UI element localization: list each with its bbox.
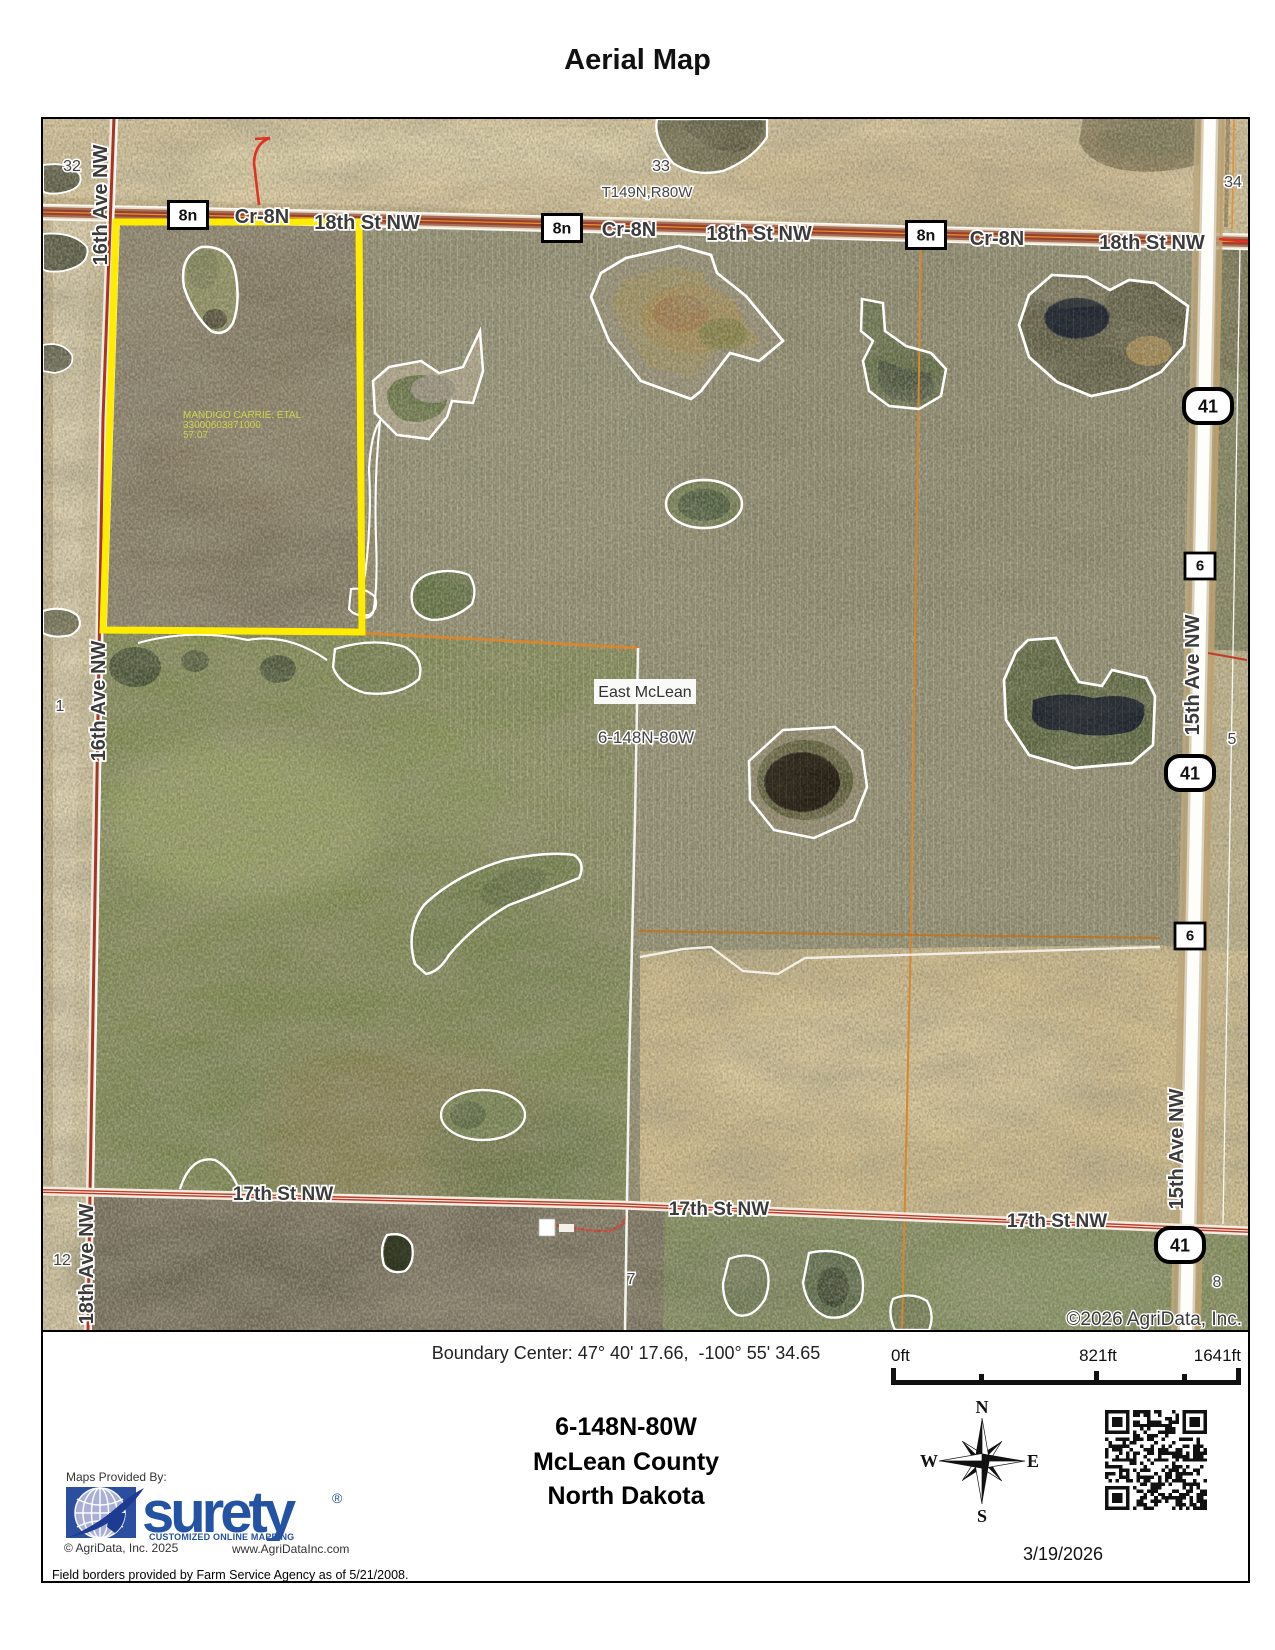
svg-text:N: N xyxy=(976,1397,989,1417)
svg-text:18th St NW: 18th St NW xyxy=(314,212,420,234)
svg-text:Cr-8N: Cr-8N xyxy=(602,219,656,241)
svg-text:CUSTOMIZED ONLINE MAPPING: CUSTOMIZED ONLINE MAPPING xyxy=(149,1532,294,1541)
svg-text:8n: 8n xyxy=(179,208,198,225)
svg-text:17th St NW: 17th St NW xyxy=(233,1184,333,1205)
svg-text:1: 1 xyxy=(56,698,65,715)
svg-text:16th Ave NW: 16th Ave NW xyxy=(88,640,110,761)
svg-text:5: 5 xyxy=(1228,731,1237,748)
svg-text:33: 33 xyxy=(652,158,670,175)
svg-text:18th Ave NW: 18th Ave NW xyxy=(76,1203,98,1324)
svg-text:17th St NW: 17th St NW xyxy=(669,1199,769,1220)
svg-text:7: 7 xyxy=(627,1271,636,1288)
svg-text:34: 34 xyxy=(1224,174,1242,191)
svg-text:6: 6 xyxy=(1196,558,1204,575)
svg-text:15th Ave NW: 15th Ave NW xyxy=(1182,614,1204,735)
svg-text:T149N,R80W: T149N,R80W xyxy=(602,184,694,201)
svg-text:18th St NW: 18th St NW xyxy=(1099,232,1205,254)
svg-text:17th St NW: 17th St NW xyxy=(1007,1211,1107,1232)
svg-text:6-148N-80W: 6-148N-80W xyxy=(598,728,694,747)
svg-text:15th Ave NW: 15th Ave NW xyxy=(1166,1088,1188,1209)
svg-text:1641ft: 1641ft xyxy=(1194,1346,1242,1365)
svg-text:©2026 AgriData, Inc.: ©2026 AgriData, Inc. xyxy=(1066,1309,1242,1330)
svg-text:41: 41 xyxy=(1170,1236,1190,1256)
svg-text:16th Ave NW: 16th Ave NW xyxy=(90,144,112,265)
svg-text:8n: 8n xyxy=(917,228,936,245)
svg-text:0ft: 0ft xyxy=(891,1346,910,1365)
svg-text:®: ® xyxy=(332,1490,343,1506)
svg-text:6: 6 xyxy=(1186,928,1194,945)
svg-text:E: E xyxy=(1027,1451,1039,1471)
svg-text:821ft: 821ft xyxy=(1079,1346,1117,1365)
svg-text:8n: 8n xyxy=(553,221,572,238)
svg-text:W: W xyxy=(920,1451,938,1471)
svg-text:S: S xyxy=(977,1506,987,1526)
svg-text:12: 12 xyxy=(53,1252,71,1269)
svg-text:32: 32 xyxy=(63,158,81,175)
svg-text:41: 41 xyxy=(1180,764,1200,784)
svg-text:57.07: 57.07 xyxy=(183,430,208,441)
svg-text:41: 41 xyxy=(1198,397,1218,417)
svg-text:8: 8 xyxy=(1213,1274,1222,1291)
svg-text:18th St NW: 18th St NW xyxy=(706,223,812,245)
svg-text:East McLean: East McLean xyxy=(598,684,691,701)
svg-text:Cr-8N: Cr-8N xyxy=(970,228,1024,250)
svg-text:Cr-8N: Cr-8N xyxy=(235,206,289,228)
